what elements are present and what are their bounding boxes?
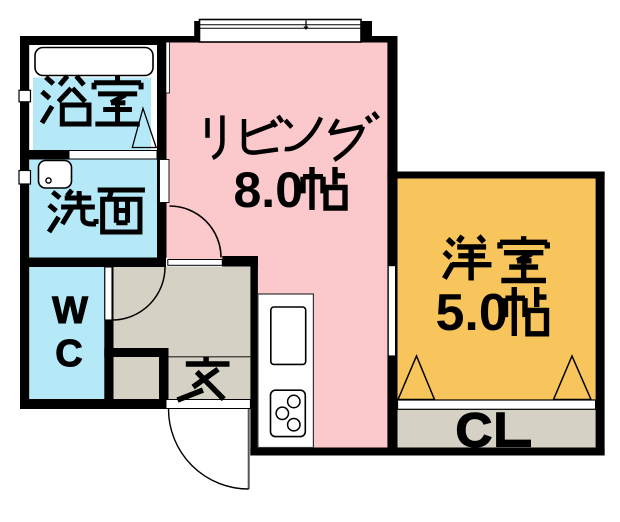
svg-text:C: C xyxy=(55,333,82,375)
svg-text:W: W xyxy=(52,290,88,332)
svg-text:8.0: 8.0 xyxy=(234,162,304,218)
svg-text:C: C xyxy=(456,404,493,457)
svg-text:5.0: 5.0 xyxy=(436,284,508,342)
